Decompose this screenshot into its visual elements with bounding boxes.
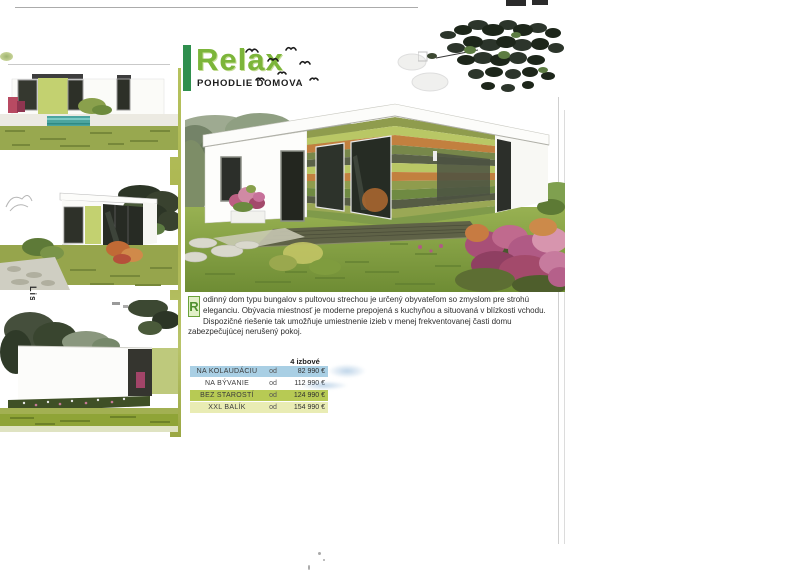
blue-watermark-smear (328, 364, 366, 378)
price-column-header: 4 izbové (282, 357, 328, 366)
flower-bushes-right (455, 218, 565, 292)
price-row-prefix: od (264, 368, 282, 375)
main-house-render (185, 95, 565, 292)
scan-green-smudge (0, 52, 13, 61)
price-row: XXL BALÍK od 154 990 € (190, 402, 328, 413)
thumb2-house (60, 193, 157, 247)
drop-cap: R (188, 296, 200, 317)
price-row-value: 82 990 € (282, 368, 328, 375)
glass-door-1 (316, 143, 344, 211)
blue-watermark-smear (300, 381, 348, 390)
scan-border-top (15, 7, 418, 8)
thumb3-house (18, 346, 178, 400)
thumb2-garden (0, 238, 178, 290)
price-row-prefix: od (264, 380, 282, 387)
scan-speck (318, 552, 321, 555)
price-row-value: 154 990 € (282, 404, 328, 411)
price-row: BEZ STAROSTÍ od 124 990 € (190, 390, 328, 401)
birds-icon (238, 42, 328, 92)
price-row-label: BEZ STAROSTÍ (190, 392, 264, 399)
brochure-page: List (0, 0, 800, 580)
title-accent-bar (183, 45, 191, 91)
price-row: NA KOLAUDÁCIU od 82 990 € (190, 366, 328, 377)
right-face-wood-slats (395, 117, 495, 227)
thumbnail-rear-view (0, 300, 178, 432)
thumbnail-side-corner-view (0, 185, 178, 290)
thumbnail-top-edge-line (8, 64, 170, 65)
price-row-label: XXL BALÍK (190, 404, 264, 411)
price-table-header: 4 izbové (190, 356, 328, 366)
price-row-label: NA KOLAUDÁCIU (190, 368, 264, 375)
price-row-label: NA BÝVANIE (190, 380, 264, 387)
description-paragraph: Rodinný dom typu bungalov s pultovou str… (188, 295, 558, 338)
price-row-value: 124 990 € (282, 392, 328, 399)
scan-speck (308, 565, 310, 570)
thumbnail-front-view-with-pool (0, 68, 178, 157)
scan-speck (323, 559, 325, 561)
price-row-prefix: od (264, 392, 282, 399)
price-row-prefix: od (264, 404, 282, 411)
description-text: odinný dom typu bungalov s pultovou stre… (188, 295, 546, 336)
corner-tree-illustration (418, 0, 565, 100)
